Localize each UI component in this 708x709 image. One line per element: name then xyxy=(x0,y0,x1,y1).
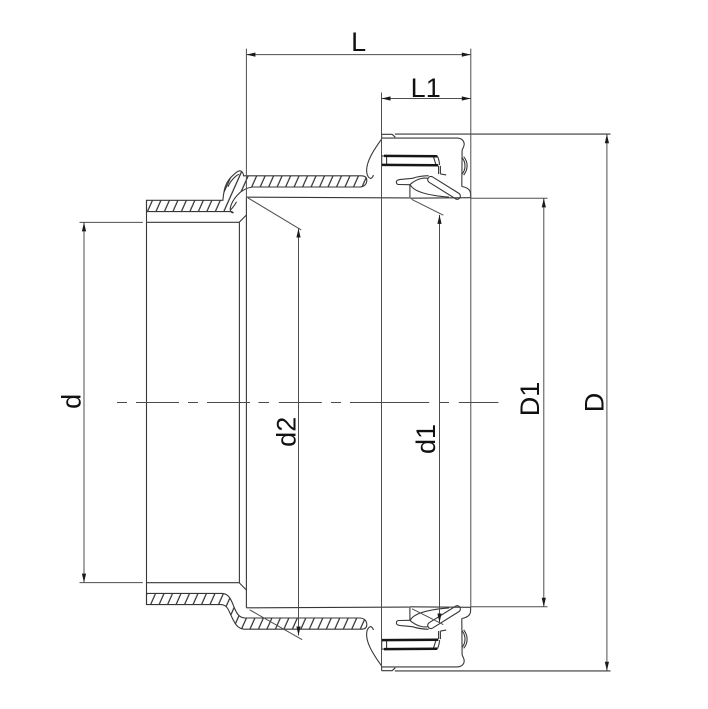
svg-text:L1: L1 xyxy=(411,73,441,103)
svg-text:D: D xyxy=(579,393,609,413)
svg-text:d: d xyxy=(57,394,87,409)
svg-text:d2: d2 xyxy=(271,417,301,447)
svg-text:D1: D1 xyxy=(515,382,545,417)
svg-text:d1: d1 xyxy=(411,424,441,454)
svg-text:L: L xyxy=(351,27,366,57)
